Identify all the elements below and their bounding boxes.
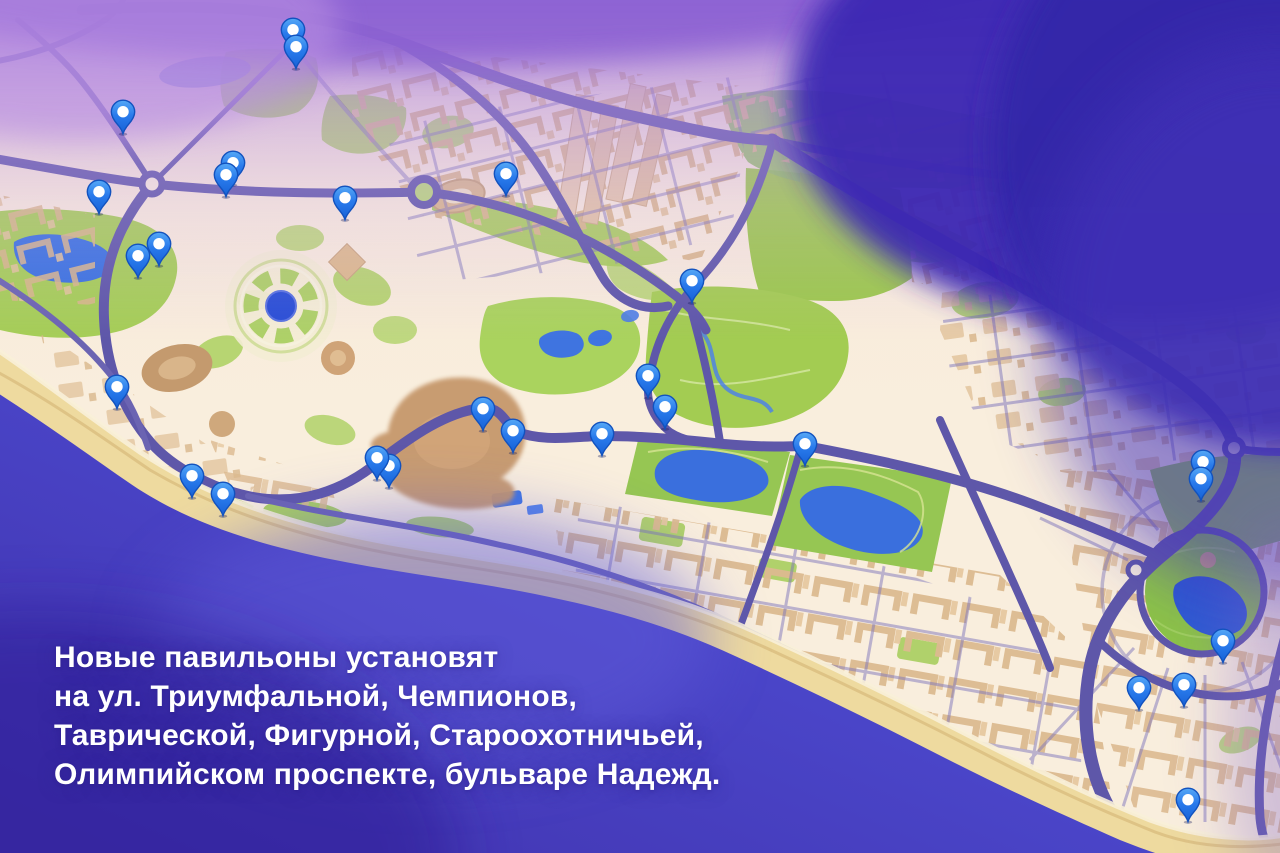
caption-line: Новые павильоны установят xyxy=(54,638,720,677)
caption: Новые павильоны установят на ул. Триумфа… xyxy=(54,638,720,794)
caption-line: Таврической, Фигурной, Староохотничьей, xyxy=(54,716,720,755)
map-poster: Новые павильоны установят на ул. Триумфа… xyxy=(0,0,1280,853)
caption-line: Олимпийском проспекте, бульваре Надежд. xyxy=(54,755,720,794)
caption-line: на ул. Триумфальной, Чемпионов, xyxy=(54,677,720,716)
